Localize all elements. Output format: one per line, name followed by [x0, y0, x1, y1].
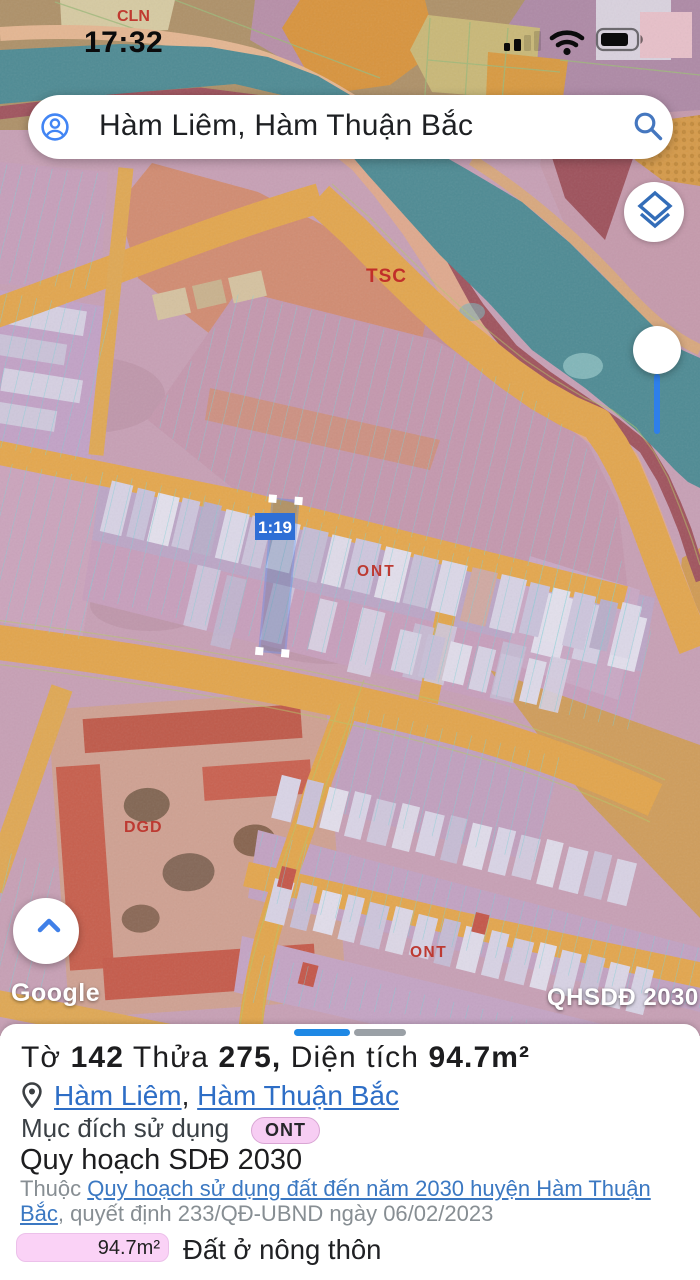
svg-text:ONT: ONT: [410, 944, 447, 961]
svg-text:ONT: ONT: [357, 563, 396, 580]
svg-text:TSC: TSC: [366, 266, 407, 287]
svg-text:DGD: DGD: [124, 819, 163, 836]
svg-text:CLN: CLN: [117, 8, 150, 25]
svg-text:1:19: 1:19: [258, 518, 292, 537]
